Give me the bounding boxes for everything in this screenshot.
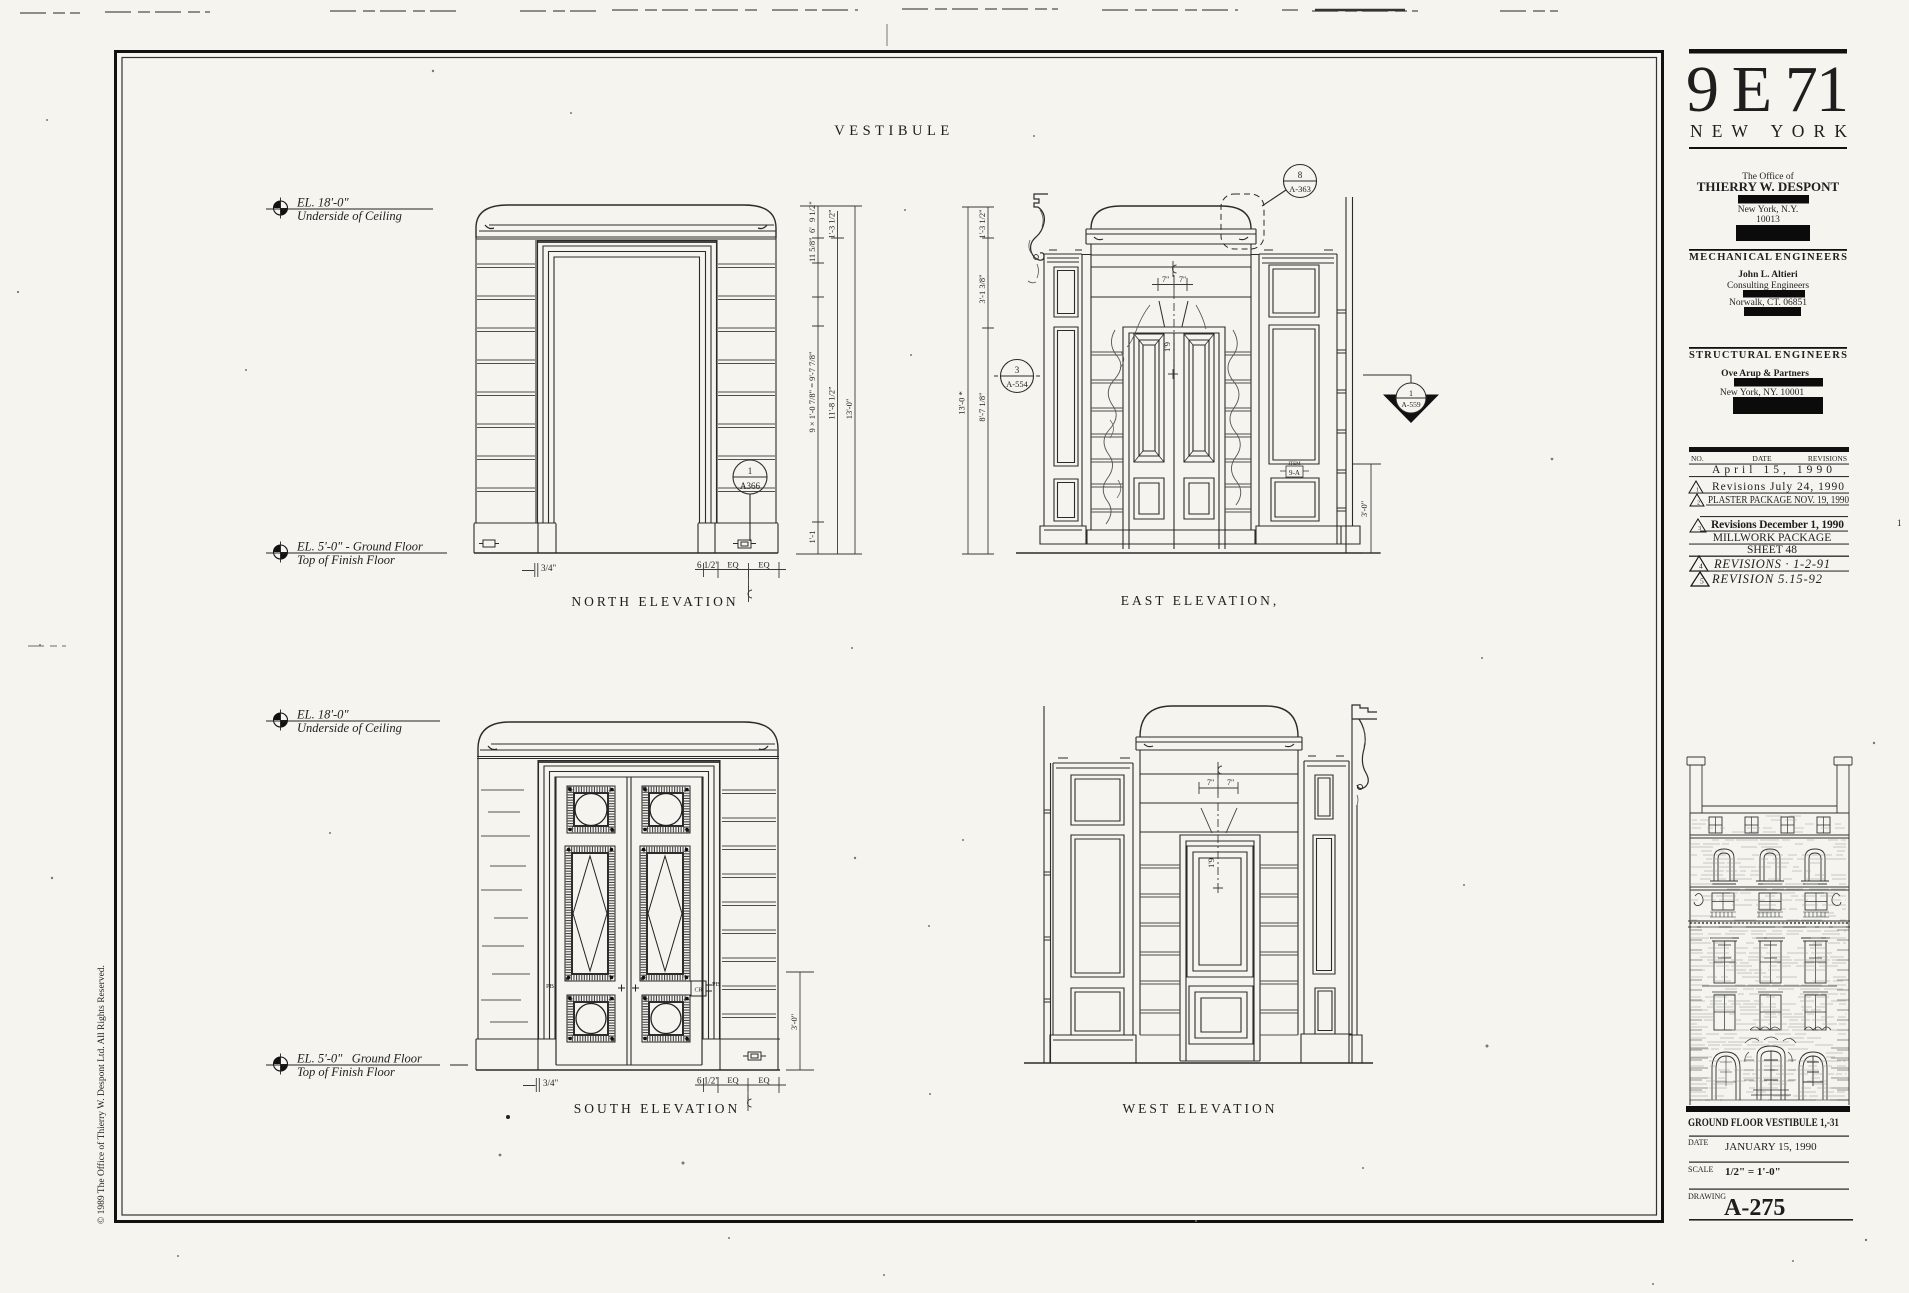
svg-text:6': 6' [807,227,817,233]
svg-text:Consulting Engineers: Consulting Engineers [1727,281,1809,291]
svg-text:WEST ELEVATION: WEST ELEVATION [1122,1101,1277,1116]
svg-text:7": 7" [1207,778,1214,787]
svg-text:1'-1: 1'-1 [807,531,817,544]
svg-text:Underside of Ceiling: Underside of Ceiling [297,209,402,223]
svg-text:11'-8 1/2": 11'-8 1/2" [827,386,837,419]
svg-text:1'9: 1'9 [1162,342,1172,352]
svg-text:Top of Finish Floor: Top of Finish Floor [297,553,395,567]
svg-text:ITEM: ITEM [1288,462,1301,467]
svg-text:A-363: A-363 [1289,184,1311,194]
svg-text:4: 4 [1699,562,1703,571]
svg-text:DRAWING: DRAWING [1688,1192,1726,1201]
svg-text:3: 3 [1015,365,1020,375]
svg-text:EQ: EQ [758,1075,769,1085]
svg-text:9 E 71: 9 E 71 [1686,53,1849,126]
svg-text:REVISIONS: REVISIONS [1808,454,1847,463]
svg-text:9-A: 9-A [1289,469,1300,477]
svg-text:SHEET 48: SHEET 48 [1747,544,1797,556]
svg-text:1'-3 1/2": 1'-3 1/2" [827,209,837,238]
svg-text:John L. Altieri: John L. Altieri [1738,270,1798,280]
svg-text:EL. 18'-0": EL. 18'-0" [296,196,349,210]
svg-text:3'-0": 3'-0" [1359,501,1369,517]
svg-text:NORTH ELEVATION: NORTH ELEVATION [571,594,738,609]
svg-text:13'-0 *: 13'-0 * [957,391,967,415]
svg-text:VESTIBULE: VESTIBULE [834,123,953,139]
svg-text:8: 8 [1298,170,1303,180]
svg-text:EL. 5'-0" Ground Floor: EL. 5'-0" Ground Floor [296,1052,422,1066]
svg-text:3'-0": 3'-0" [789,1014,799,1030]
svg-text:MILLWORK PACKAGE: MILLWORK PACKAGE [1713,532,1832,544]
svg-text:A-559: A-559 [1401,400,1420,409]
svg-text:1: 1 [1409,389,1413,398]
svg-text:REVISION 5.15-92: REVISION 5.15-92 [1711,572,1822,586]
svg-text:EQ: EQ [727,1075,738,1085]
svg-text:7": 7" [1162,275,1169,284]
svg-text:3/4": 3/4" [543,1078,559,1088]
svg-text:PB: PB [546,983,555,990]
svg-text:7": 7" [1227,778,1234,787]
svg-text:EQ: EQ [727,560,738,570]
svg-text:Ove Arup & Partners: Ove Arup & Partners [1721,369,1809,379]
svg-text:A-275: A-275 [1724,1195,1785,1221]
svg-text:3/4": 3/4" [541,563,557,573]
svg-text:7": 7" [1179,275,1186,284]
svg-text:EL. 18'-0": EL. 18'-0" [296,708,349,722]
svg-text:1: 1 [1897,518,1902,528]
svg-text:2: 2 [1697,501,1700,507]
svg-text:A366: A366 [740,481,760,491]
svg-text:S T R U C T U R A L E N G I N: S T R U C T U R A L E N G I N E E R S [1689,350,1847,361]
svg-text:6 1/2": 6 1/2" [697,560,719,570]
svg-text:EQ: EQ [758,560,769,570]
svg-text:CR: CR [694,988,702,994]
svg-text:JANUARY 15, 1990: JANUARY 15, 1990 [1725,1141,1817,1153]
svg-text:6 1/2": 6 1/2" [697,1076,719,1086]
svg-text:GROUND FLOOR VESTIBULE 1,-31: GROUND FLOOR VESTIBULE 1,-31 [1688,1115,1839,1129]
svg-text:PLASTER PACKAGE NOV. 19, 1990: PLASTER PACKAGE NOV. 19, 1990 [1708,495,1849,506]
svg-text:A-554: A-554 [1006,379,1028,389]
svg-text:© 1989 The Office of Thierry W: © 1989 The Office of Thierry W. Despont … [96,965,107,1224]
svg-text:DATE: DATE [1752,454,1772,463]
svg-text:REVISIONS · 1-2-91: REVISIONS · 1-2-91 [1713,557,1830,571]
svg-text:Underside of Ceiling: Underside of Ceiling [297,721,402,735]
svg-text:Revisions December 1, 1990: Revisions December 1, 1990 [1711,519,1844,531]
svg-text:SCALE: SCALE [1688,1165,1713,1174]
svg-text:New York, N.Y.: New York, N.Y. [1738,205,1799,215]
svg-text:8'-7 1/8": 8'-7 1/8" [977,392,987,421]
svg-text:5: 5 [1700,577,1704,586]
svg-text:1'-3 1/2": 1'-3 1/2" [977,209,987,238]
svg-text:9 1/2": 9 1/2" [807,201,817,222]
svg-text:1: 1 [748,466,753,476]
svg-text:10013: 10013 [1756,215,1780,225]
svg-text:THIERRY W. DESPONT: THIERRY W. DESPONT [1697,179,1840,194]
svg-text:PB: PB [712,981,721,988]
svg-text:DATE: DATE [1688,1138,1709,1147]
svg-text:13'-0": 13'-0" [844,399,854,420]
svg-text:EL. 5'-0" - Ground Floor: EL. 5'-0" - Ground Floor [296,540,423,554]
svg-text:1/2" = 1'-0": 1/2" = 1'-0" [1725,1166,1781,1178]
svg-text:11 5/8": 11 5/8" [807,237,817,262]
svg-text:Top of Finish Floor: Top of Finish Floor [297,1065,395,1079]
svg-text:9 × 1'-0 7/8" = 9'-7 7/8": 9 × 1'-0 7/8" = 9'-7 7/8" [807,352,817,433]
svg-text:3'-1 3/8": 3'-1 3/8" [977,274,987,303]
svg-text:Revisions July 24, 1990: Revisions July 24, 1990 [1712,481,1844,493]
svg-text:EAST ELEVATION,: EAST ELEVATION, [1121,593,1280,608]
svg-text:M E C H A N I C A L E N G I N: M E C H A N I C A L E N G I N E E R S [1689,252,1847,263]
svg-text:New York, NY. 10001: New York, NY. 10001 [1720,388,1805,398]
svg-text:1'9: 1'9 [1206,858,1216,868]
svg-text:Norwalk, CT. 06851: Norwalk, CT. 06851 [1729,298,1807,308]
svg-text:NO.: NO. [1691,454,1704,463]
svg-text:SOUTH ELEVATION: SOUTH ELEVATION [574,1101,741,1116]
